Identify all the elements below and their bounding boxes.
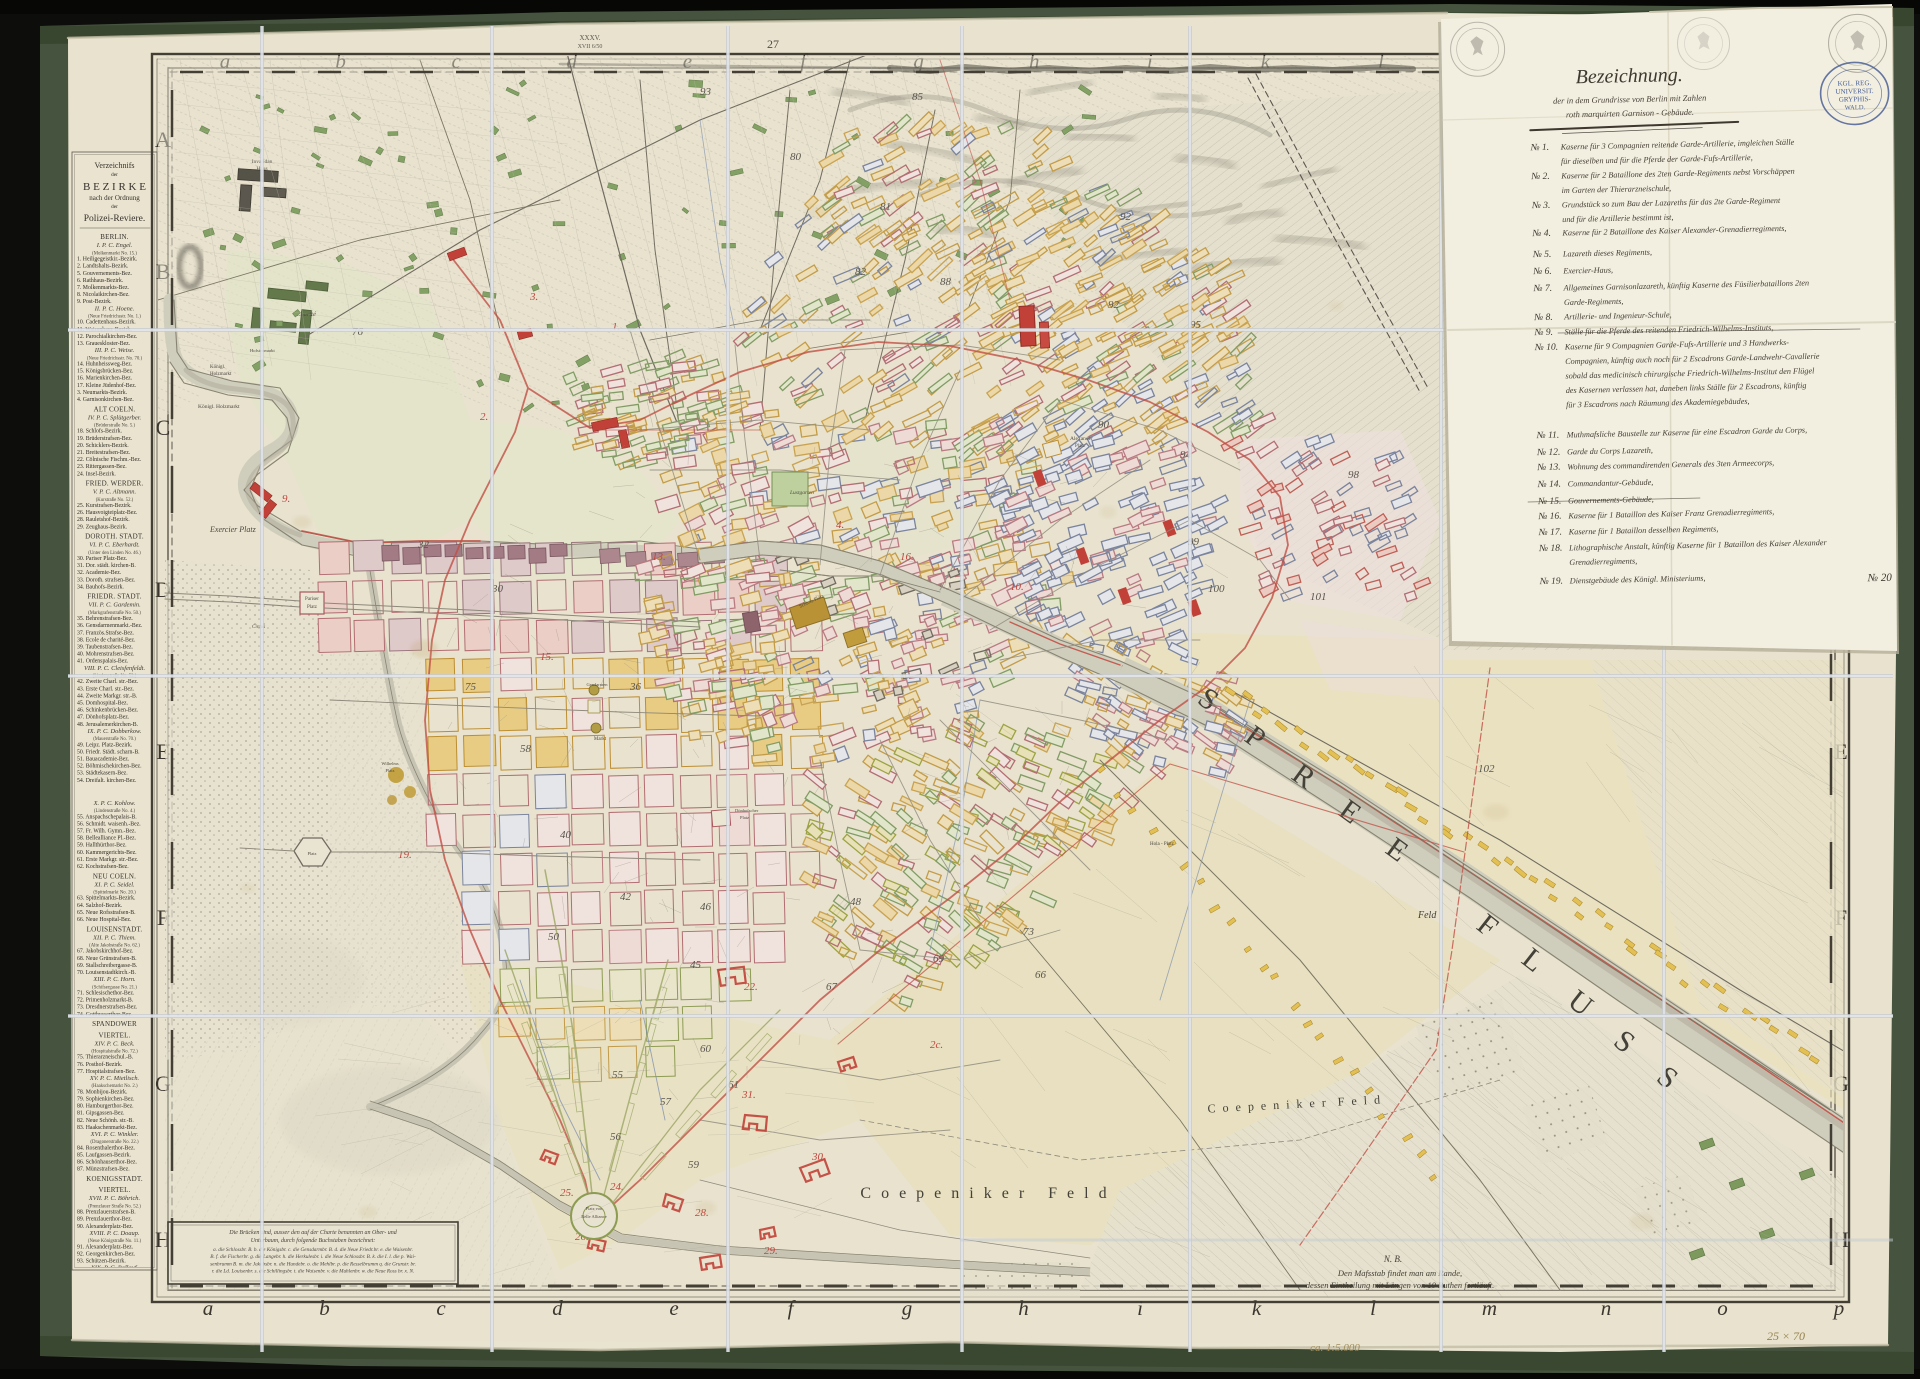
svg-text:№ 16.: № 16. bbox=[1537, 512, 1561, 523]
svg-text:№ 20: № 20 bbox=[1867, 572, 1893, 585]
svg-text:№ 7.: № 7. bbox=[1533, 284, 1553, 294]
svg-text:№ 11.: № 11. bbox=[1536, 431, 1560, 441]
svg-text:№ 5.: № 5. bbox=[1532, 250, 1552, 260]
svg-text:№ 1.: № 1. bbox=[1530, 143, 1550, 153]
svg-text:№ 12.: № 12. bbox=[1536, 448, 1560, 459]
svg-text:№ 18.: № 18. bbox=[1538, 544, 1562, 555]
svg-text:№ 17.: № 17. bbox=[1538, 528, 1562, 539]
svg-text:Garde-Regiments,: Garde-Regiments, bbox=[1564, 297, 1624, 307]
svg-text:Lazareth dieses Regiments,: Lazareth dieses Regiments, bbox=[1562, 248, 1652, 259]
svg-text:№ 13.: № 13. bbox=[1536, 463, 1560, 474]
svg-text:№ 2.: № 2. bbox=[1530, 172, 1550, 182]
svg-text:GRYPHIS-: GRYPHIS- bbox=[1839, 95, 1872, 104]
svg-text:№ 19.: № 19. bbox=[1539, 577, 1563, 588]
svg-text:Garde du Corps Lazareth,: Garde du Corps Lazareth, bbox=[1567, 446, 1653, 457]
svg-text:№ 10.: № 10. bbox=[1534, 343, 1558, 354]
svg-text:№ 4.: № 4. bbox=[1531, 229, 1551, 239]
svg-text:№ 9.: № 9. bbox=[1533, 328, 1553, 338]
svg-text:Exercier-Haus,: Exercier-Haus, bbox=[1562, 265, 1613, 275]
svg-text:ca. 1:5.000: ca. 1:5.000 bbox=[1310, 1342, 1360, 1354]
svg-text:Grenadierregiments,: Grenadierregiments, bbox=[1569, 557, 1637, 567]
svg-text:№ 3.: № 3. bbox=[1531, 201, 1551, 211]
svg-text:№ 8.: № 8. bbox=[1533, 313, 1553, 323]
svg-text:Bezeichnung.: Bezeichnung. bbox=[1575, 64, 1683, 88]
svg-text:25 × 70: 25 × 70 bbox=[1767, 1329, 1805, 1343]
svg-text:Commandantur-Gebäude,: Commandantur-Gebäude, bbox=[1568, 478, 1654, 489]
svg-text:№ 6.: № 6. bbox=[1532, 267, 1552, 277]
svg-text:WALD.: WALD. bbox=[1845, 104, 1866, 111]
svg-text:№ 14.: № 14. bbox=[1537, 480, 1561, 491]
